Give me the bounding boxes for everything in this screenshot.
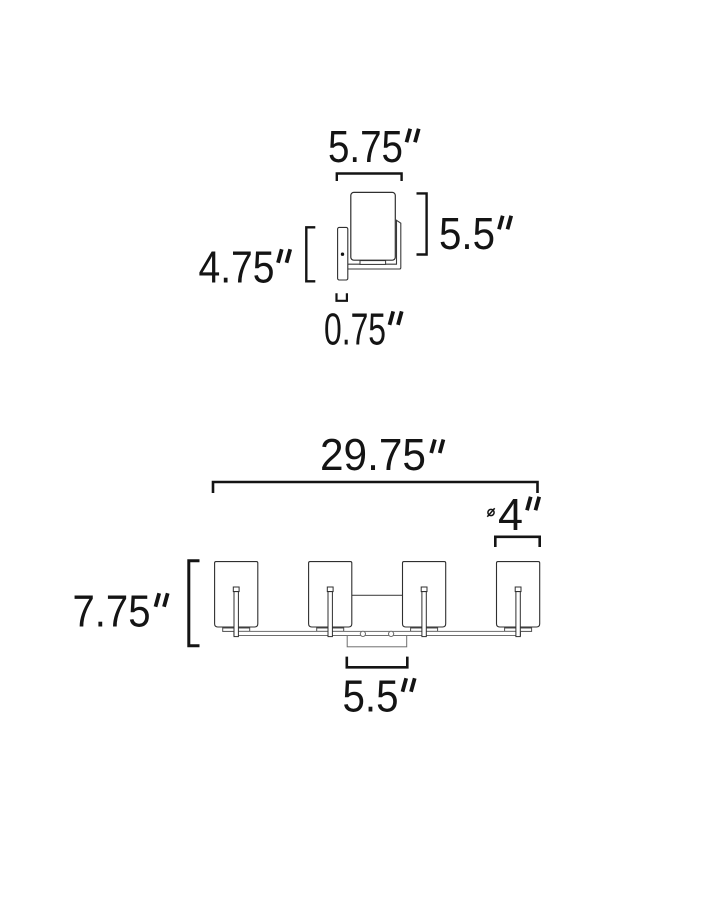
svg-text:29.75: 29.75 (320, 429, 426, 480)
svg-text:5.5: 5.5 (343, 671, 399, 722)
svg-text:0.75: 0.75 (324, 304, 386, 355)
svg-text:5.75: 5.75 (328, 121, 403, 172)
svg-text:5.5: 5.5 (439, 208, 495, 259)
svg-text:7.75: 7.75 (73, 586, 151, 637)
svg-text:4.75: 4.75 (199, 242, 275, 293)
svg-text:4: 4 (498, 489, 523, 540)
